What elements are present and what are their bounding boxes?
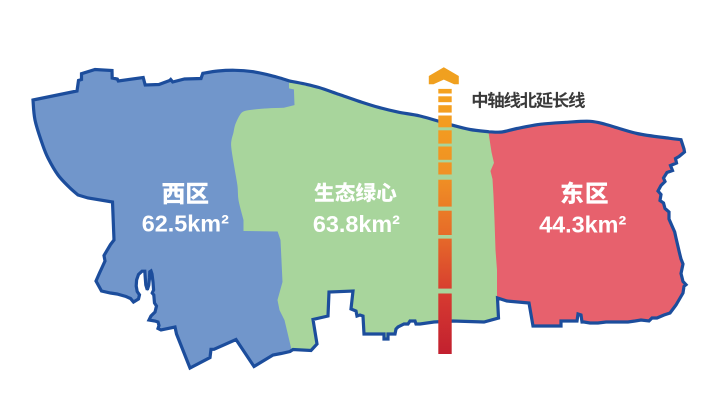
svg-text:62.5km²: 62.5km² bbox=[142, 211, 229, 237]
svg-text:44.3km²: 44.3km² bbox=[539, 212, 626, 238]
svg-text:63.8km²: 63.8km² bbox=[313, 211, 400, 237]
